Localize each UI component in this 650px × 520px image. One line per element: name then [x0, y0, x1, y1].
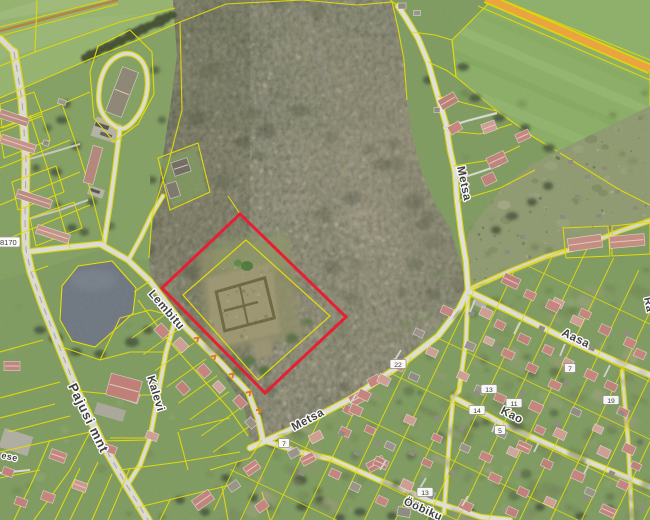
svg-text:7: 7	[282, 441, 286, 448]
svg-text:7: 7	[568, 366, 572, 373]
svg-text:13: 13	[485, 387, 493, 394]
svg-text:8170: 8170	[0, 238, 17, 247]
svg-text:13: 13	[421, 490, 429, 497]
svg-text:22: 22	[394, 362, 402, 369]
svg-text:14: 14	[473, 408, 481, 415]
svg-text:11: 11	[510, 401, 517, 408]
svg-text:5: 5	[498, 428, 502, 435]
svg-text:19: 19	[607, 398, 615, 405]
